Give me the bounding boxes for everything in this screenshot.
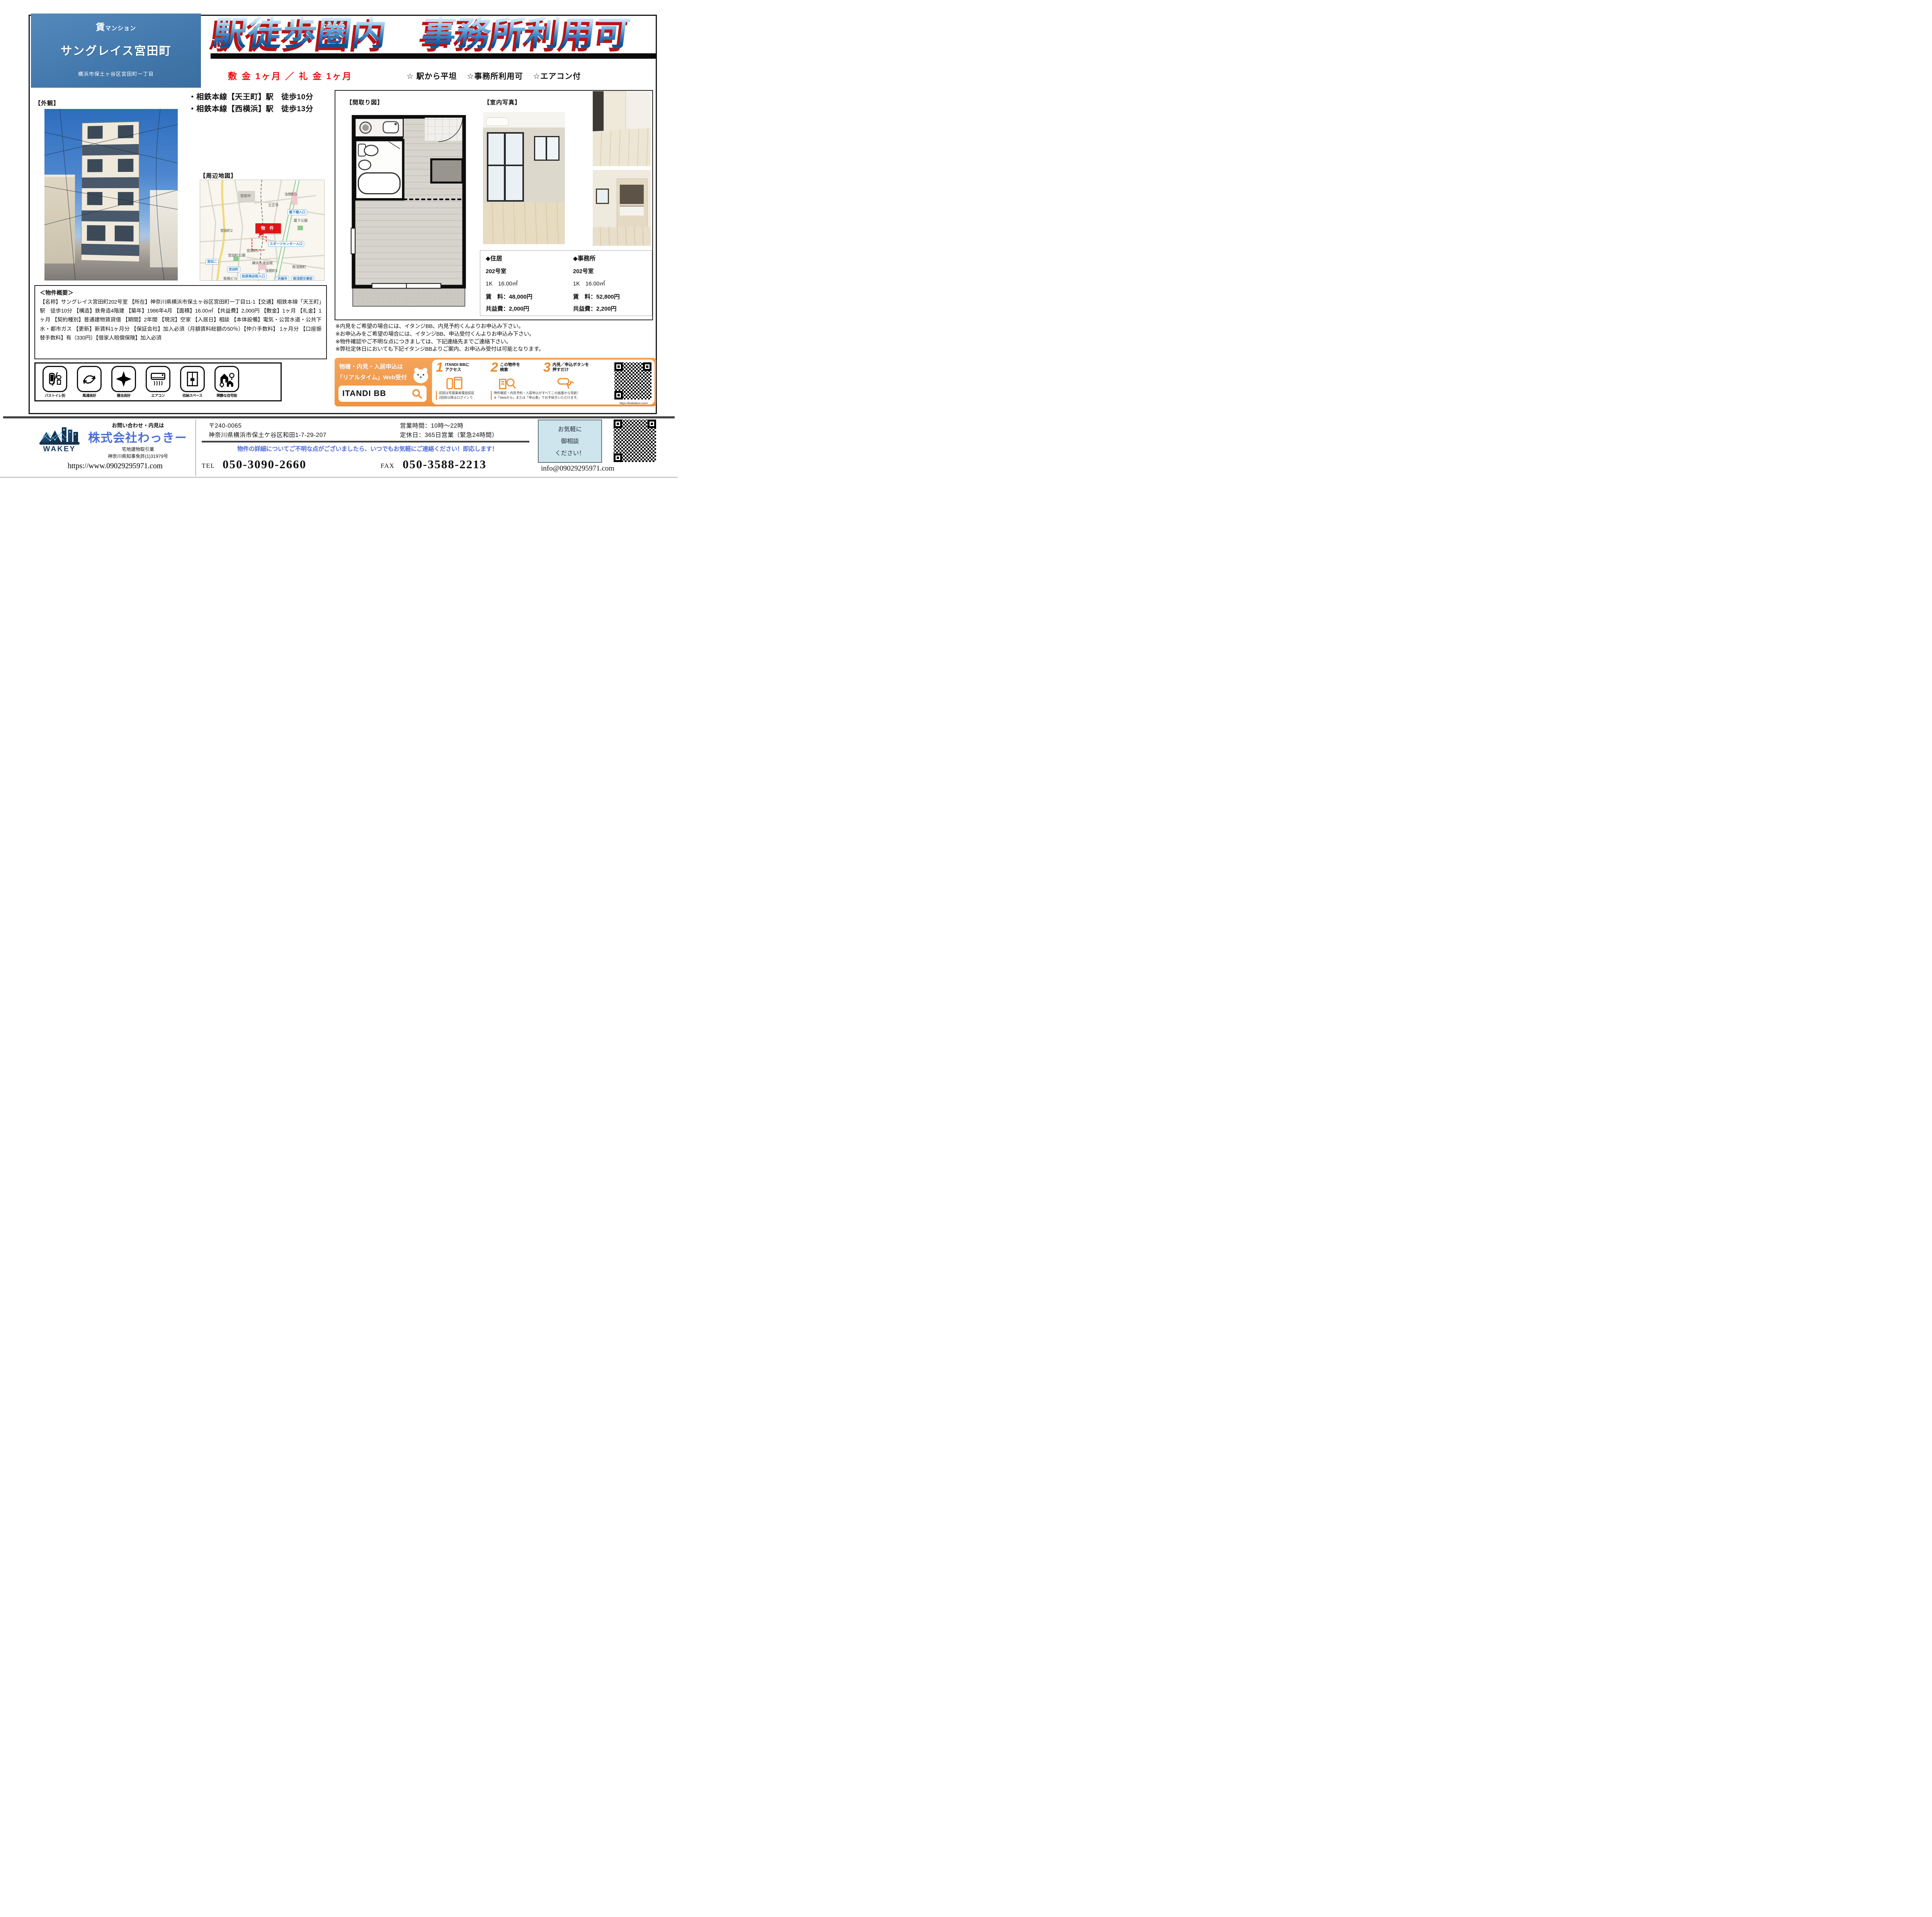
itandi-lead1: 物確・内見・入居申込は <box>339 362 403 370</box>
holiday-info: 定休日：365日営業（緊急24時間） <box>400 430 498 439</box>
map-label-park1: 霜下公園 <box>294 218 308 223</box>
login-device-icon <box>446 376 463 389</box>
property-map-marker: 物 件 <box>255 223 281 233</box>
map-label: 【周辺地図】 <box>200 172 237 180</box>
map-pill-matsubara: 松原商店街入口 <box>240 274 267 279</box>
map-label-miyata2: 宮田町2 <box>220 228 233 233</box>
property-overview: ＜物件概要＞ 【名称】サングレイス宮田町202号室 【所在】神奈川県横浜市保土ヶ… <box>34 285 327 359</box>
map-label-temple: 立正寺 <box>268 202 279 207</box>
floorplan-label: 【間取り図】 <box>346 98 383 106</box>
feature-highlights: ☆ 駅から平坦☆事務所利用可☆エアコン付 <box>406 70 591 81</box>
station-access: ・相鉄本線【天王町】駅 徒歩10分 ・相鉄本線【西横浜】駅 徒歩13分 <box>189 91 313 115</box>
amenity-sunlight: 陽当良好 <box>109 366 138 400</box>
exterior-photo <box>44 109 178 280</box>
map-label-miyatapark: 宮田町公園 <box>228 253 245 258</box>
interior-photo-kitchen <box>593 170 651 246</box>
itandi-fineprint-1: 初回は宅建業者電話認証2回目以降はログインで <box>436 391 486 400</box>
itandi-web-reception: 物確・内見・入居申込は 「リアルタイム」Web受付 ITANDI BB 1 IT… <box>335 358 656 406</box>
note-line: ※物件確認やご不明な点につきましては、下記連絡先までご連絡下さい。 <box>335 338 544 346</box>
unit-plan: 1K 16.00㎡ <box>486 279 563 287</box>
ventilation-icon <box>77 366 102 392</box>
tel-number: 050-3090-2660 <box>223 457 306 471</box>
feature-office: ☆事務所利用可 <box>467 72 523 81</box>
license-number: 神奈川県知事免許(1)31979号 <box>82 453 194 459</box>
contact-message: 物件の詳細についてご不明な点がございましたら、いつでもお気軽にご連絡ください！即… <box>204 444 531 453</box>
exterior-label: 【外観】 <box>35 99 60 107</box>
amenity-quiet-area: 閑静な住宅街 <box>212 366 241 400</box>
unit-category: ◆住居 <box>486 254 563 262</box>
map-pill-miyata2stop: 宮田二 <box>206 259 219 265</box>
note-line: ※内見をご希望の場合には、イタンジBB、内見予約くんよりお申込み下さい。 <box>335 323 544 331</box>
amenity-aircon: エアコン <box>143 366 173 400</box>
unit-fee: 共益費：2,000円 <box>486 304 563 313</box>
feature-aircon: ☆エアコン付 <box>533 72 581 81</box>
search-icon <box>411 388 423 399</box>
interior-photo-main <box>483 112 565 244</box>
company-website: https://www.09029295971.com <box>34 462 196 471</box>
business-hours: 営業時間：10時～22時 <box>400 421 463 430</box>
itandi-qr-caption: https://bukkakun.com/ <box>611 401 657 405</box>
map-pill-bridge: 霜下橋入口 <box>287 209 307 215</box>
itandi-lead2: 「リアルタイム」Web受付 <box>337 373 407 381</box>
unit-plan: 1K 16.00㎡ <box>573 279 650 287</box>
unit-room: 202号室 <box>486 267 563 275</box>
property-type-badge: 賃マンション <box>31 20 201 33</box>
map-pill-koban: 南浅間交番前 <box>291 276 314 281</box>
office-address: 神奈川県横浜市保土ケ谷区和田1-7-29-207 <box>209 430 327 439</box>
map-pill-miyatacho: 宮田町 <box>227 267 240 272</box>
unit-room: 202号室 <box>573 267 650 275</box>
itandi-bb-search-pill: ITANDI BB <box>338 386 427 402</box>
map-label-suido: 横浜水道会館 <box>252 260 273 265</box>
footer-divider <box>3 416 675 419</box>
station-access-line1: ・相鉄本線【天王町】駅 徒歩10分 <box>189 91 313 103</box>
power-lines <box>44 109 178 280</box>
amenity-ventilation: 風通良好 <box>75 366 104 400</box>
itandi-fineprint-2: 物件確認・内見予約・入居申込がすべてこの画面から完結！※「Webから」または「申… <box>491 391 607 400</box>
consult-box: お気軽に 御相談 ください！ <box>538 420 602 463</box>
aircon-unit <box>486 117 509 126</box>
polar-bear-icon <box>411 366 429 384</box>
itandi-step-3: 3 内見／申込ボタンを押すだけ <box>543 361 609 391</box>
application-notes: ※内見をご希望の場合には、イタンジBB、内見予約くんよりお申込み下さい。 ※お申… <box>335 323 544 353</box>
photos-label: 【室内写真】 <box>484 98 521 106</box>
contact-qr-code <box>614 420 656 462</box>
map-label-school: 宮田中 <box>240 193 251 198</box>
unit-pricing: ◆住居 202号室 1K 16.00㎡ 賃 料：48,000円 共益費：2,00… <box>480 250 652 316</box>
unit-fee: 共益費：2,200円 <box>573 304 650 313</box>
wakey-logo <box>37 425 82 445</box>
closet-icon <box>180 366 205 392</box>
overview-body: 【名称】サングレイス宮田町202号室 【所在】神奈川県横浜市保土ヶ谷区宮田町一丁… <box>40 297 321 342</box>
map-label-itabashi: 板橋ビル <box>223 276 237 281</box>
amenity-icons: バストイレ別 風通良好 陽当良好 エアコン 収納スペース <box>34 362 282 401</box>
footer-column-divider <box>196 420 196 476</box>
amenity-storage: 収納スペース <box>178 366 207 400</box>
wakey-logo-text: WAKEY <box>37 445 82 454</box>
property-header-box: 賃マンション サングレイス宮田町 横浜市保土ヶ谷区宮田町一丁目 <box>31 14 201 88</box>
amenity-bath-toilet: バストイレ別 <box>40 366 70 400</box>
itandi-step-2: 2 この物件を検索 <box>491 361 541 391</box>
property-search-icon <box>498 376 516 389</box>
postal-code: 〒240-0065 <box>209 421 242 430</box>
itandi-bb-logo: ITANDI BB <box>342 389 411 398</box>
sun-icon <box>111 366 136 392</box>
flyer-page: 賃マンション サングレイス宮田町 横浜市保土ヶ谷区宮田町一丁目 駅徒歩圏内 事務… <box>0 0 678 479</box>
overview-title: ＜物件概要＞ <box>40 289 321 297</box>
unit-residence: ◆住居 202号室 1K 16.00㎡ 賃 料：48,000円 共益費：2,00… <box>486 254 563 313</box>
bath-toilet-separate-icon <box>43 366 67 392</box>
quiet-residential-icon <box>214 366 239 392</box>
map-label-asamacho5: 浅間町5 <box>265 268 277 273</box>
fax-label: FAX <box>381 462 395 470</box>
station-access-line2: ・相鉄本線【西横浜】駅 徒歩13分 <box>189 103 313 115</box>
map-label-minamiasama: 南浅間町 <box>292 264 306 269</box>
unit-rent: 賃 料：52,800円 <box>573 292 650 301</box>
property-map-outline2 <box>258 236 267 242</box>
footer-inner-divider <box>202 440 529 442</box>
aircon-icon <box>146 366 170 392</box>
headline-underbar <box>211 53 657 59</box>
itandi-step-1: 1 ITANDI BBにアクセス <box>436 361 489 391</box>
unit-rent: 賃 料：48,000円 <box>486 292 563 301</box>
tel-label: TEL <box>202 462 215 470</box>
tap-button-icon <box>557 376 575 389</box>
unit-office: ◆事務所 202号室 1K 16.00㎡ 賃 料：52,800円 共益費：2,2… <box>573 254 650 313</box>
interior-photo-top <box>593 91 651 166</box>
page-bottom-edge <box>0 477 678 478</box>
floor-plan <box>349 112 469 308</box>
contact-email: info@09029295971.com <box>541 464 676 473</box>
contact-lead: お問い合わせ・内見は <box>82 421 194 429</box>
map-label-asamacho3: 浅間町3 <box>284 192 297 197</box>
property-name: サングレイス宮田町 <box>31 41 201 58</box>
note-line: ※お申込みをご希望の場合には、イタンジBB、申込受付くんよりお申込み下さい。 <box>335 331 544 338</box>
map-label-miyata1: 宮田町1 <box>247 248 259 253</box>
company-name: 株式会社わっきー <box>80 428 196 445</box>
property-address: 横浜市保土ヶ谷区宮田町一丁目 <box>31 70 201 77</box>
map-pill-sportscenter: スポーツセンター入口 <box>268 241 304 247</box>
deposit-key-money: 敷 金 1ヶ月 ／ 礼 金 1ヶ月 <box>228 69 352 82</box>
feature-flat: ☆ 駅から平坦 <box>406 72 457 81</box>
map-pill-kofukuji: 洪福寺 <box>276 276 289 281</box>
headline-banner: 駅徒歩圏内 事務所利用可 駅徒歩圏内 事務所利用可 <box>213 16 658 53</box>
area-map: 宮田中 浅間町3 立正寺 霜下橋入口 霜下公園 宮田町2 物 件 スポーツセンタ… <box>200 180 325 281</box>
unit-category: ◆事務所 <box>573 254 650 262</box>
fax-number: 050-3588-2213 <box>403 457 486 471</box>
itandi-qr-code <box>614 362 651 399</box>
business-type: 宅地建物取引業 <box>82 446 194 452</box>
note-line: ※弊社定休日においても下記イタンジBBよりご案内、お申込み受付は可能となります。 <box>335 346 544 353</box>
headline-text: 駅徒歩圏内 事務所利用可 <box>211 16 633 51</box>
